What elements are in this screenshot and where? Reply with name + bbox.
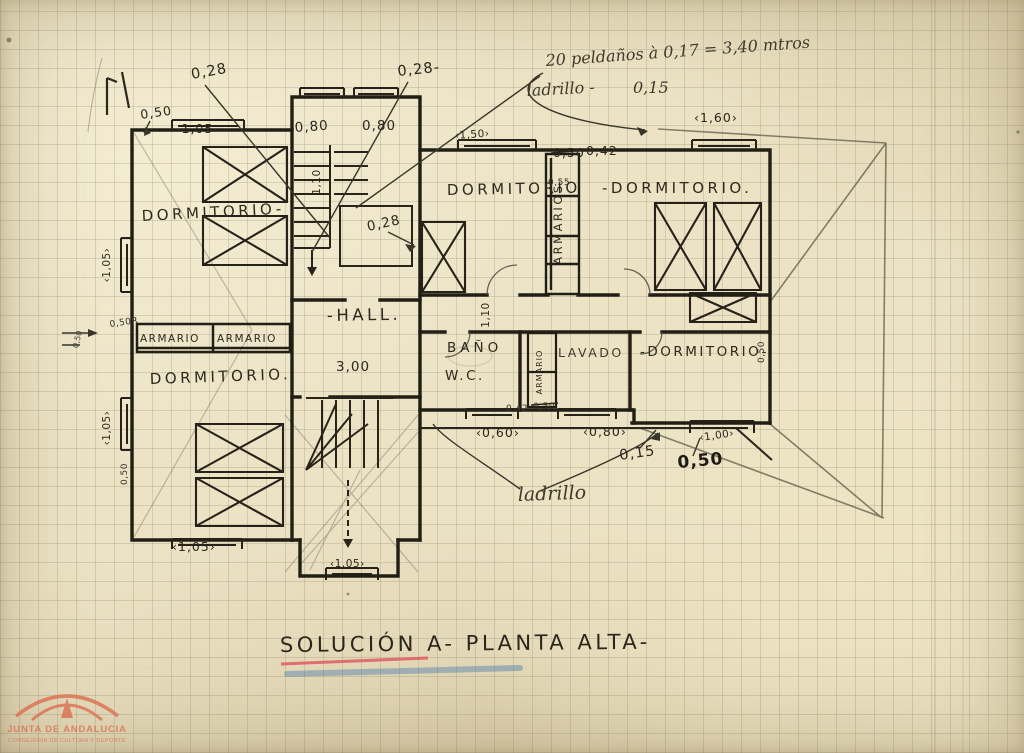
room-label-dormitorio-right: -DORMITORIO- [640,344,769,360]
dim-105-bottom-left: ‹1,05› [172,539,216,554]
room-label-bano: BAÑO [447,339,502,356]
stamp-triangle [61,698,73,718]
dim-105-left-wall-upper: ‹1,05› [101,248,113,283]
stamp-line2: CONSEJERIA DE CULTURA Y DEPORTE [8,738,126,744]
page-title: SOLUCIÓN A- PLANTA ALTA- [280,629,651,657]
note-steps: 20 peldaños à 0,17 = 3,40 mtros [544,33,811,71]
dim-050-bottom-bold: 0,50 [677,449,725,473]
dim-160-top-right: ‹1,60› [694,110,738,125]
dim-042-bath: 0,42 [506,404,528,414]
stairs-upper-arrowhead [307,267,317,276]
dim-100-bottom: ‹1,00› [699,427,735,444]
room-label-hall: -HALL. [327,305,402,325]
pencil-guides [88,58,492,572]
dim-300-hall: 3,00 [336,359,370,375]
note-brick-bottom: ladrillo [517,482,586,506]
junta-andalucia-stamp: JUNTA DE ANDALUCIA CONSEJERIA DE CULTURA… [7,696,127,744]
room-label-lavado: LAVADO [558,345,624,360]
dim-050-right-wall: 0,50 [757,341,767,363]
floorplan-sketch: DORMITORIO- DORMITORIO. DORMITORIO -DORM… [0,0,1024,753]
dim-050-bath-crossed: 0,50 [533,402,555,412]
closet-label-left-2: ARMARIO [217,333,277,345]
stamp-line1: JUNTA DE ANDALUCIA [7,724,127,735]
note-brick-label: ladrillo - [526,77,595,100]
dim-080-a: 0,80 [294,118,329,136]
closet-label-center: ARMARIOS [551,183,565,264]
dim-105-top: -1,05- [176,121,219,136]
dim-050-crossed: 0,50 [553,145,585,160]
dim-105-left-wall-lower: ‹1,05› [101,411,113,446]
room-label-dormitorio-top-left: DORMITORIO- [141,200,285,225]
dim-060-bottom: ‹0,60› [476,425,520,440]
stairs-lower-arrowhead [343,539,353,548]
note-brick-value: 0,15 [633,78,669,97]
room-label-dormitorio-bottom-left: DORMITORIO. [150,365,292,388]
dim-028-top-right: 0,28- [397,60,441,80]
corner-mark [107,72,129,115]
dim-080-bottom: ‹0,80› [583,424,627,439]
leader-arrowheads [88,127,660,441]
closet-label-left-1: ARMARIO [140,333,200,345]
dim-055: 0,55 [548,178,570,188]
dim-028-top-left: 0,28 [190,61,229,83]
dim-050-left-lower: 0,50 [120,463,130,485]
dim-080-b: 0,80 [362,118,396,134]
room-label-dormitorio-top-right: -DORMITORIO. [602,179,752,197]
dim-050R-left: 0,50R [109,316,139,330]
dim-015-bottom: 0,15 [618,443,656,464]
dim-042-top: 0,42 [586,143,618,158]
dim-110-hall: 1,10 [480,302,492,327]
closet-label-bath: ARMARIO [535,350,544,395]
title-underline-blue [287,668,520,674]
dim-028-mid: 0,28 [366,212,403,235]
stairs-lower [306,398,394,540]
graph-paper-sheet: DORMITORIO- DORMITORIO. DORMITORIO -DORM… [0,0,1024,753]
dim-050-top-left: 0,50 [139,103,173,122]
dim-150-top: ‹1,50› [454,128,490,142]
title-underline-red [281,658,428,664]
dim-105-bottom-center: ‹1,05› [330,558,365,570]
dim-110-stair: 1,10 [311,169,323,194]
room-label-wc: W.C. [445,368,485,384]
